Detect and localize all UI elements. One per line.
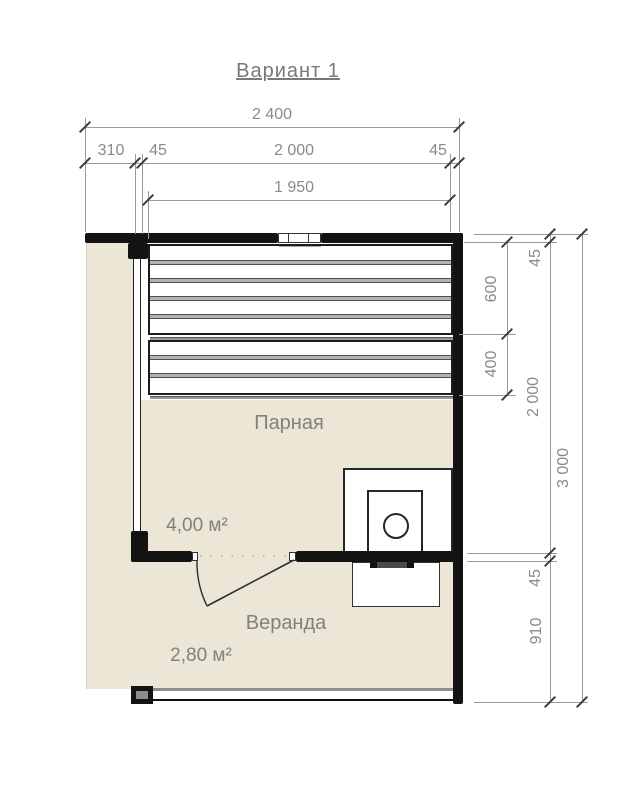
dimension-line-total-depth <box>582 234 583 702</box>
veranda-corner-post-inner <box>136 691 148 699</box>
dimension-line-depths <box>550 234 551 702</box>
extension-line <box>142 154 143 234</box>
extension-line <box>467 553 557 554</box>
dim-label-total-width: 2 400 <box>252 106 292 124</box>
dim-label-wall-left: 45 <box>149 142 167 160</box>
area-label-steam-room: 4,00 м² <box>166 515 228 537</box>
dim-label-room-depth: 2 000 <box>525 377 543 417</box>
area-label-veranda: 2,80 м² <box>170 645 232 667</box>
dim-label-wall-top: 45 <box>527 249 545 267</box>
dimension-line-benches <box>507 242 508 396</box>
extension-line <box>474 702 588 703</box>
floor-plan-canvas: Вариант 1 Парная 4,00 <box>0 0 628 807</box>
dim-label-bench-lower: 400 <box>483 351 501 378</box>
dimension-line-total-width <box>85 127 460 128</box>
door-leaf <box>207 560 294 606</box>
room-label-veranda: Веранда <box>246 612 327 635</box>
extension-line <box>85 118 86 232</box>
dim-label-bench-upper: 600 <box>483 276 501 303</box>
dim-label-veranda-depth: 910 <box>528 618 546 645</box>
veranda-railing <box>150 688 453 701</box>
dim-label-deck: 310 <box>98 142 125 160</box>
dim-label-total-depth: 3 000 <box>555 448 573 488</box>
dimension-line-inner-width <box>148 200 450 201</box>
extension-line <box>467 561 557 562</box>
dim-label-inner-width: 1 950 <box>274 179 314 197</box>
extension-line <box>464 242 557 243</box>
door-arc <box>197 560 207 606</box>
dim-label-wall-bottom: 45 <box>527 569 545 587</box>
dim-label-wall-right: 45 <box>429 142 447 160</box>
extension-line <box>474 234 588 235</box>
room-label-steam-room: Парная <box>254 412 324 435</box>
extension-line <box>450 154 451 232</box>
extension-line <box>459 118 460 232</box>
dim-label-width: 2 000 <box>274 142 314 160</box>
